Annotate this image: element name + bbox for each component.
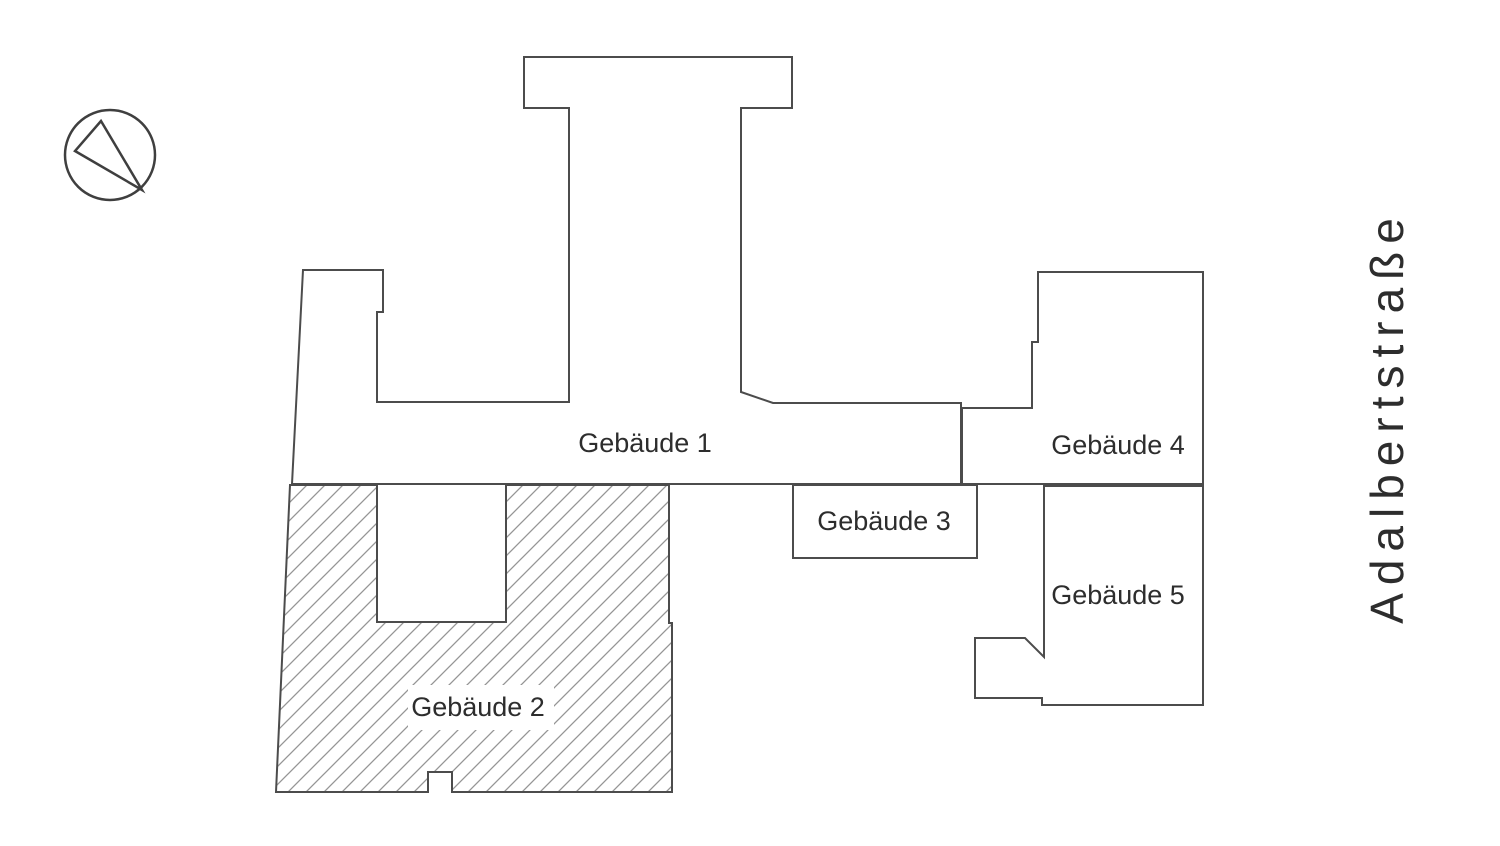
gebaeude-5-label: Gebäude 5 xyxy=(1051,580,1185,610)
building-gebaeude-1-outline xyxy=(292,57,961,484)
compass-circle xyxy=(65,110,155,200)
building-gebaeude-2-outline xyxy=(276,485,672,792)
north-arrow-icon xyxy=(65,110,155,200)
compass-needle xyxy=(75,121,142,190)
site-plan-drawing: Gebäude 1 Gebäude 2 Gebäude 3 Gebäude 4 … xyxy=(0,0,1500,846)
gebaeude-4-label: Gebäude 4 xyxy=(1051,430,1185,460)
site-plan: Gebäude 1 Gebäude 2 Gebäude 3 Gebäude 4 … xyxy=(0,0,1500,846)
gebaeude-3-label: Gebäude 3 xyxy=(817,506,951,536)
street-name-label: Adalbertstraße xyxy=(1361,210,1413,624)
gebaeude-1-label: Gebäude 1 xyxy=(578,428,712,458)
gebaeude-2-label: Gebäude 2 xyxy=(411,692,545,722)
